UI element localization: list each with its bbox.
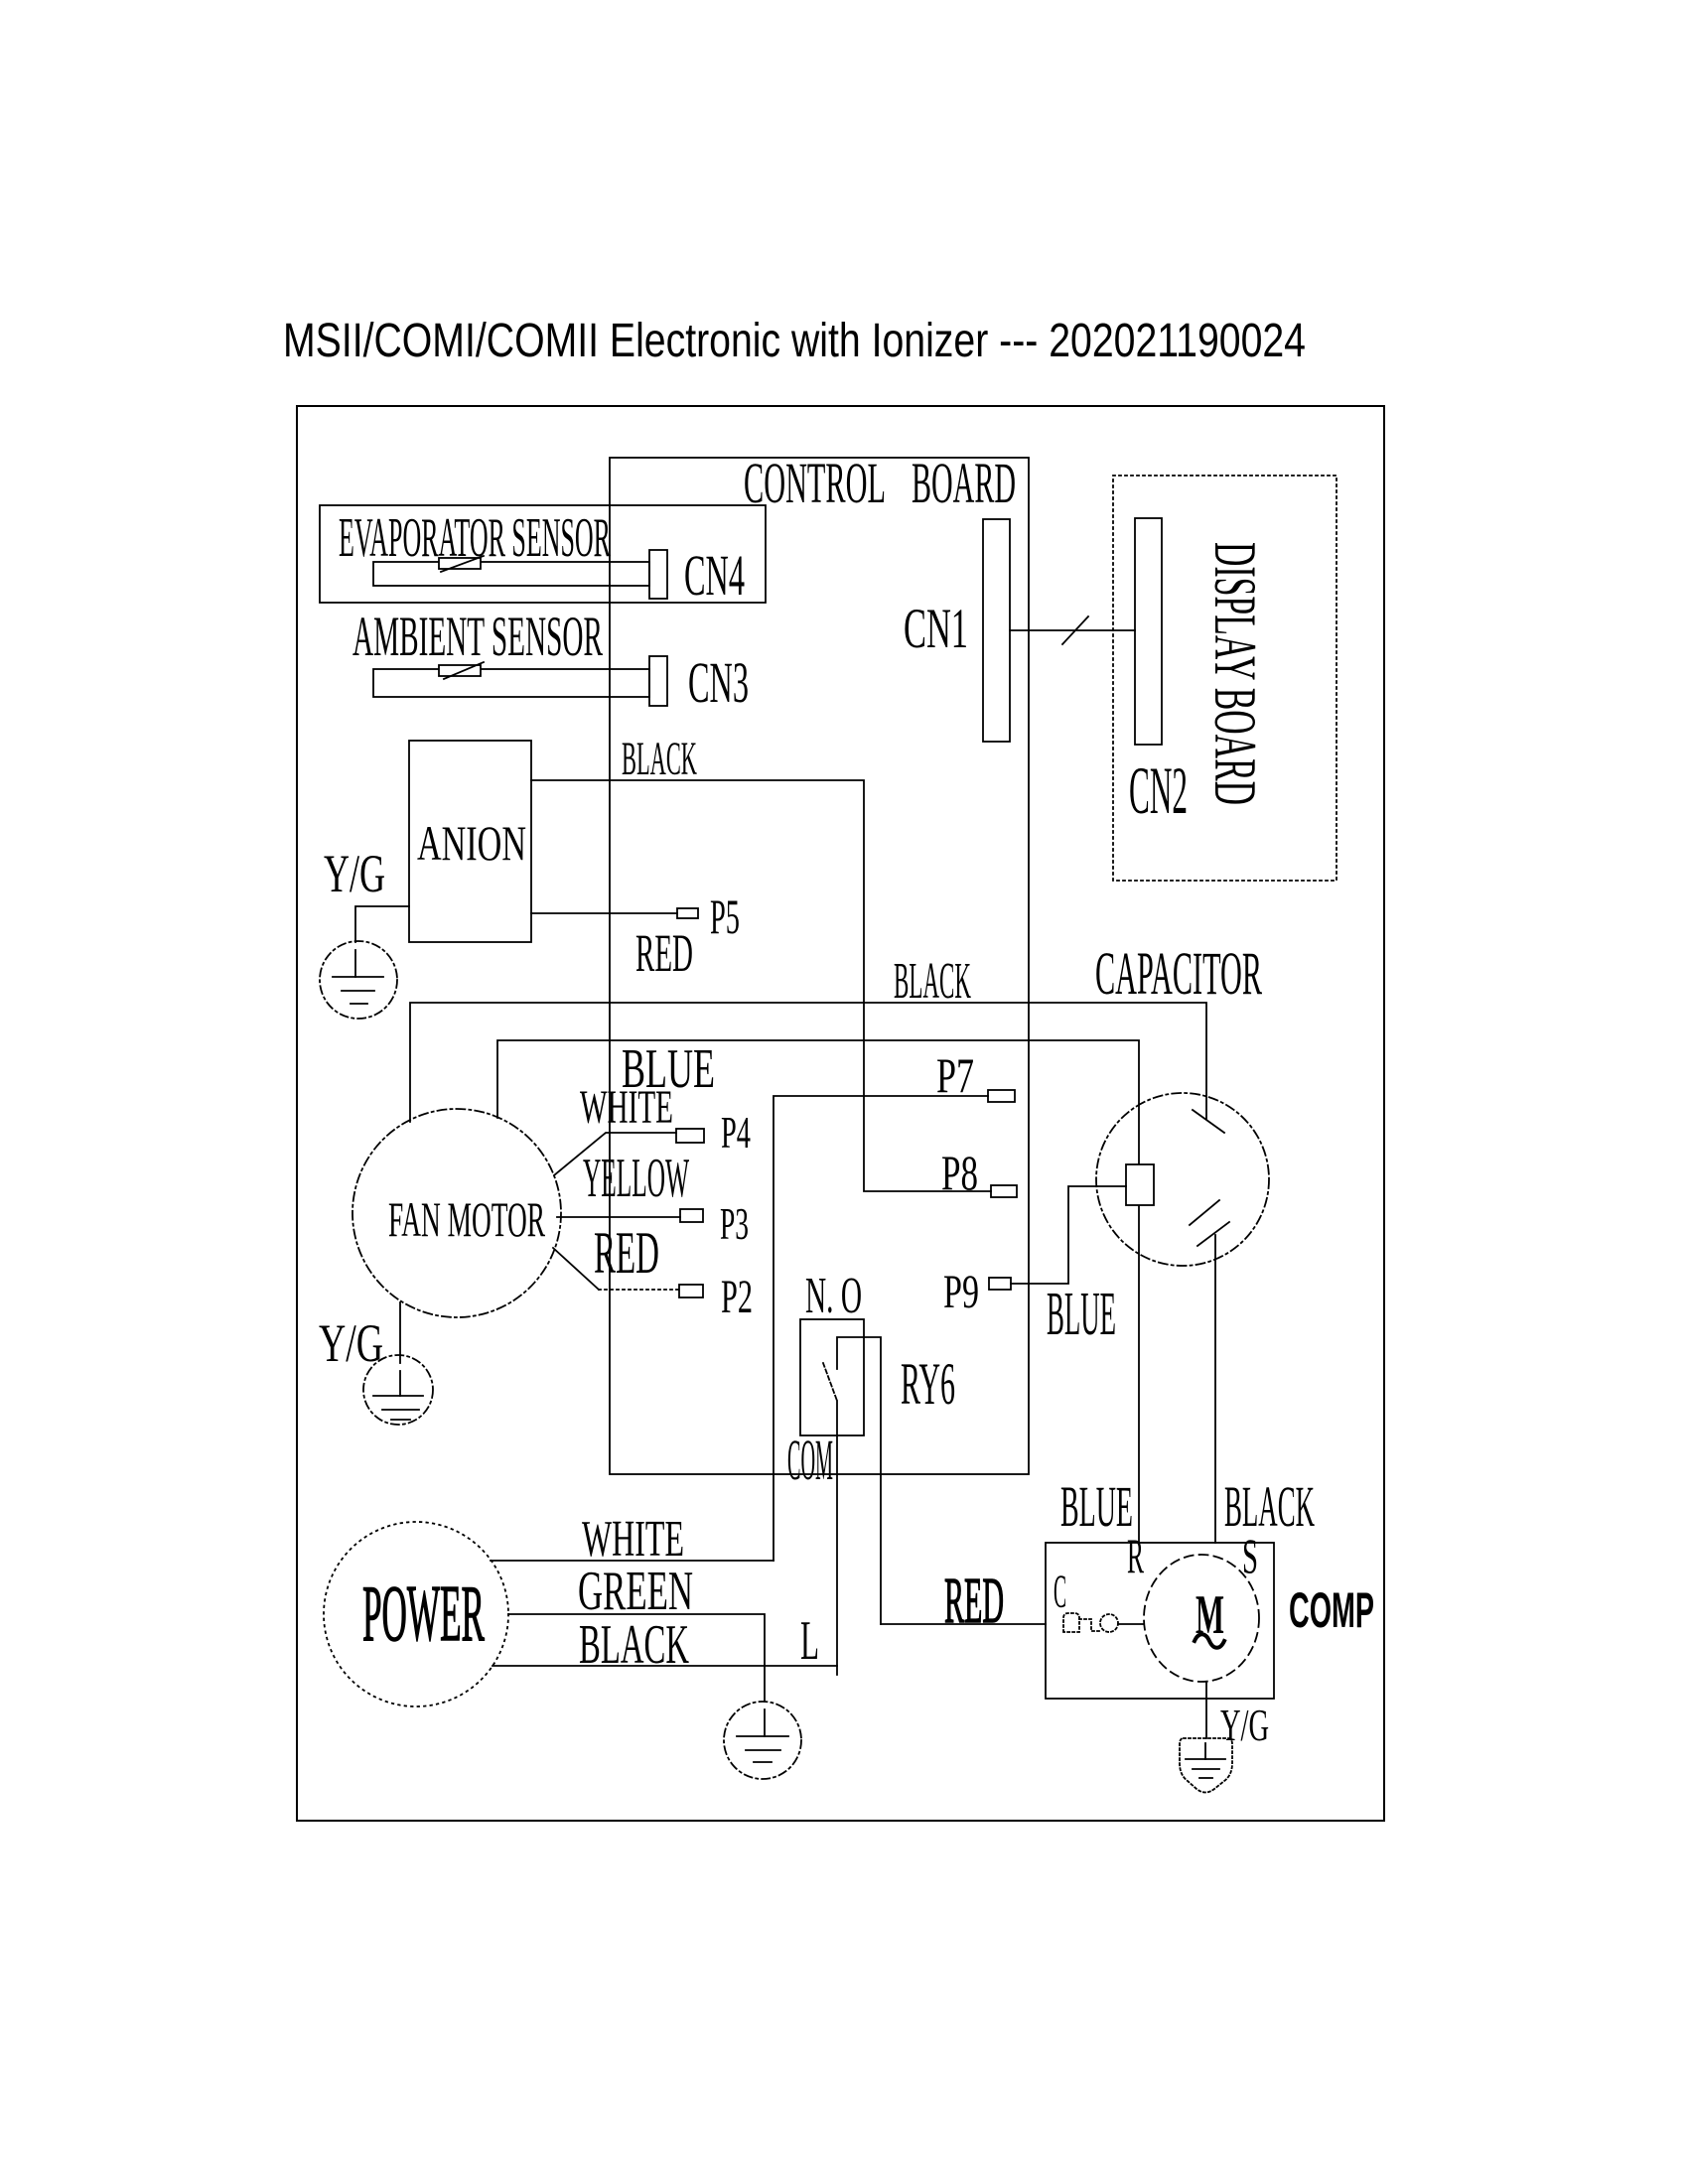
svg-text:L: L: [800, 1610, 819, 1672]
svg-text:RED: RED: [635, 923, 693, 983]
svg-text:BLACK: BLACK: [622, 733, 697, 785]
svg-text:COMP: COMP: [1289, 1582, 1374, 1638]
svg-text:YELLOW: YELLOW: [583, 1148, 689, 1209]
svg-text:RED: RED: [594, 1220, 659, 1286]
svg-text:CN2: CN2: [1129, 752, 1188, 828]
svg-text:BLUE: BLUE: [1060, 1474, 1133, 1539]
svg-text:AMBIENT SENSOR: AMBIENT SENSOR: [352, 606, 603, 668]
svg-text:BLACK: BLACK: [894, 953, 971, 1010]
svg-text:R: R: [1127, 1528, 1144, 1583]
svg-text:P9: P9: [943, 1266, 979, 1318]
svg-text:GREEN: GREEN: [578, 1561, 693, 1622]
svg-text:P5: P5: [710, 888, 740, 944]
svg-text:WHITE: WHITE: [580, 1081, 673, 1134]
svg-text:P3: P3: [720, 1198, 749, 1249]
svg-text:Y/G: Y/G: [324, 844, 385, 903]
svg-text:N. O: N. O: [805, 1268, 862, 1324]
svg-text:P4: P4: [721, 1107, 751, 1158]
svg-text:DISPLAY BOARD: DISPLAY BOARD: [1202, 542, 1268, 805]
svg-text:CAPACITOR: CAPACITOR: [1095, 941, 1262, 1008]
svg-text:CN1: CN1: [904, 598, 968, 660]
svg-text:FAN MOTOR: FAN MOTOR: [388, 1191, 545, 1247]
svg-text:BLUE: BLUE: [1047, 1281, 1116, 1348]
svg-text:BOARD: BOARD: [912, 451, 1016, 515]
svg-text:ANION: ANION: [417, 815, 526, 871]
svg-text:COM: COM: [787, 1428, 833, 1492]
svg-text:P8: P8: [941, 1145, 978, 1200]
svg-text:RED: RED: [944, 1565, 1004, 1637]
svg-text:C: C: [1054, 1566, 1066, 1618]
svg-text:MSII/COMI/COMII Electronic wit: MSII/COMI/COMII Electronic with Ionizer …: [283, 315, 1306, 367]
svg-text:POWER: POWER: [362, 1570, 485, 1658]
svg-text:BLACK: BLACK: [1224, 1474, 1315, 1539]
svg-text:P7: P7: [936, 1047, 974, 1103]
svg-text:RY6: RY6: [901, 1351, 955, 1417]
svg-text:CN4: CN4: [684, 543, 745, 608]
svg-text:P2: P2: [721, 1271, 753, 1323]
svg-text:Y/G: Y/G: [1220, 1700, 1269, 1750]
svg-text:WHITE: WHITE: [582, 1511, 684, 1568]
svg-text:CN3: CN3: [688, 650, 749, 715]
